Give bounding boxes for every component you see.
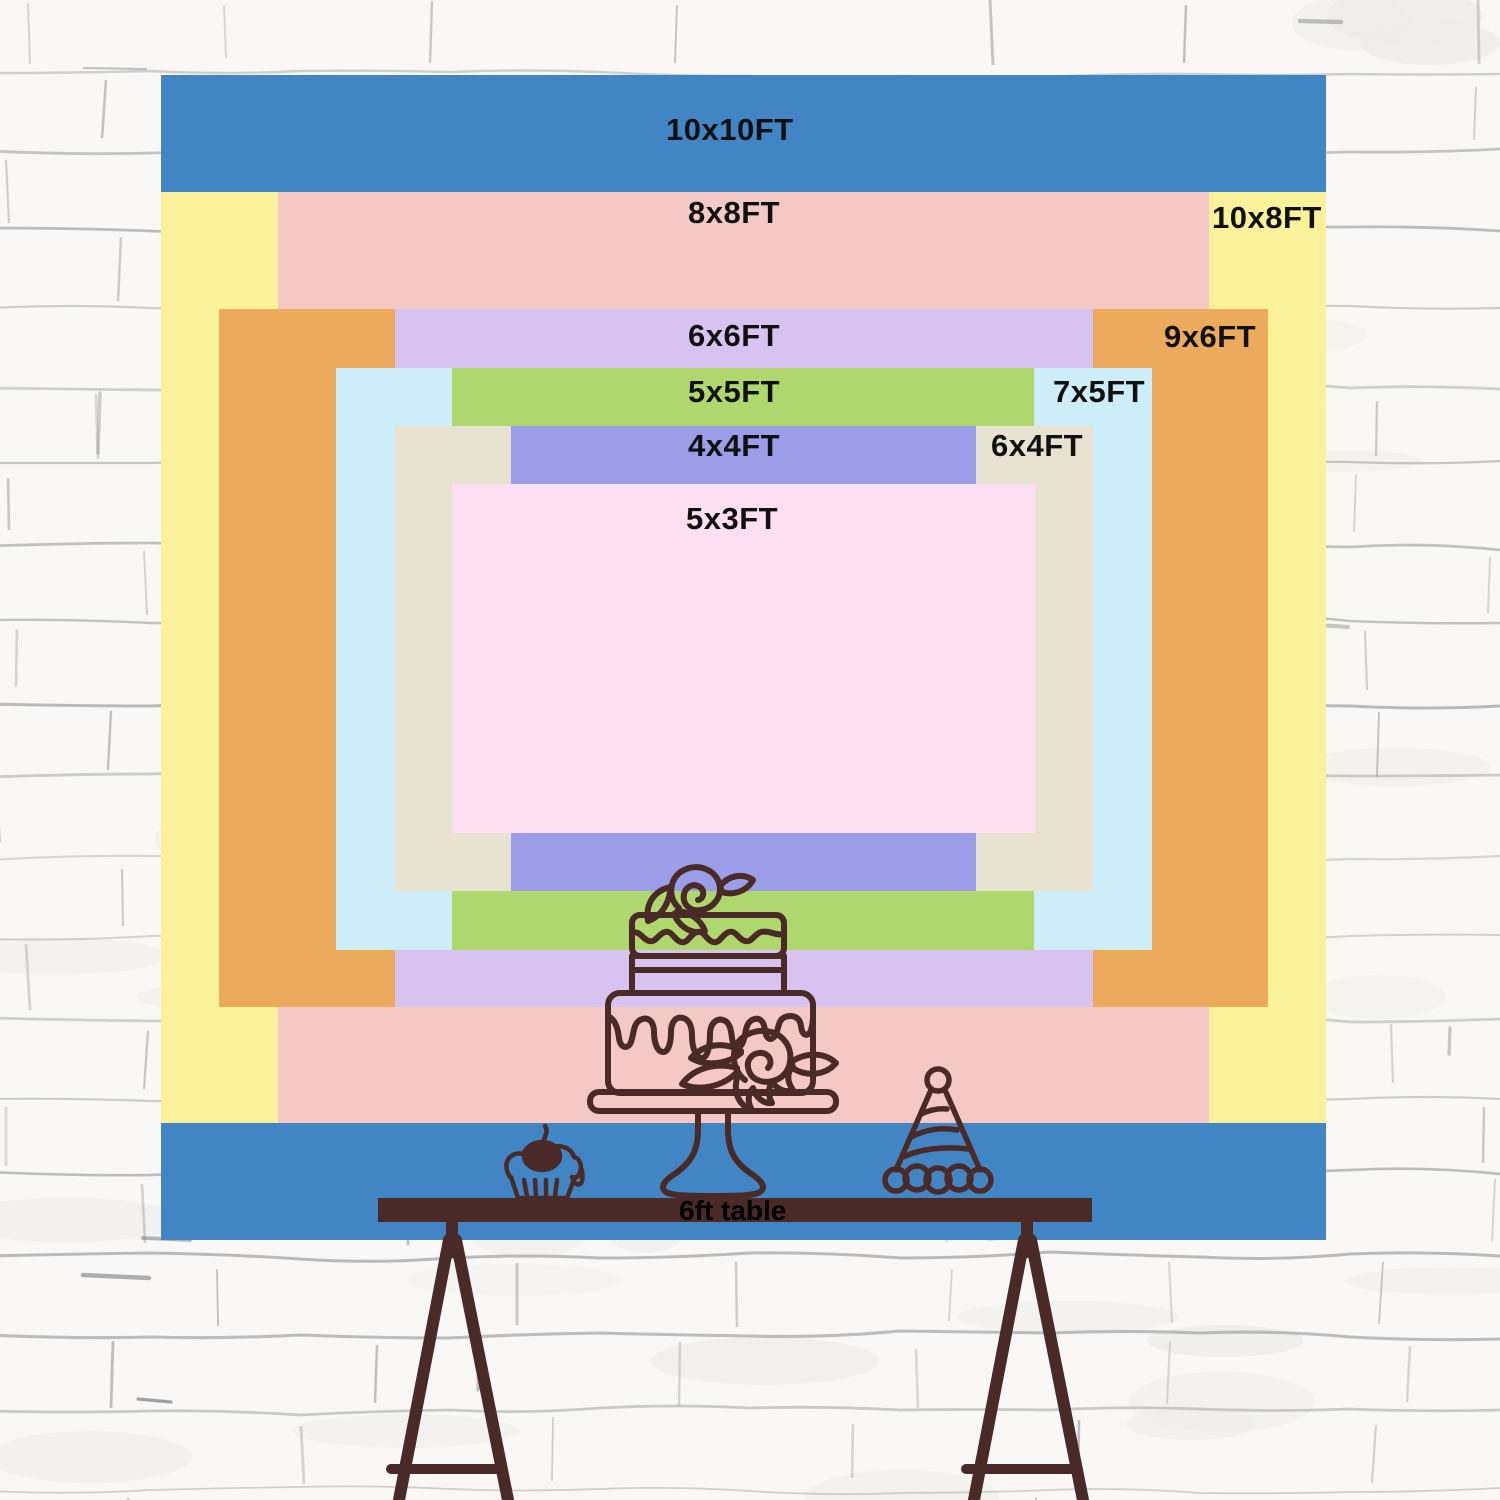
party-hat-icon <box>885 1069 991 1192</box>
table-leg-left <box>391 1216 508 1500</box>
table-label: 6ft table <box>679 1197 786 1225</box>
table-leg-right <box>966 1216 1083 1500</box>
table-scene-artwork <box>0 0 1500 1500</box>
tiered-cake-icon <box>590 867 836 1196</box>
backdrop-size-chart: 10x10FT 10x8FT 8x8FT 9x6FT 6x6FT 7x5FT 5… <box>0 0 1500 1500</box>
cupcake-icon <box>506 1126 582 1198</box>
